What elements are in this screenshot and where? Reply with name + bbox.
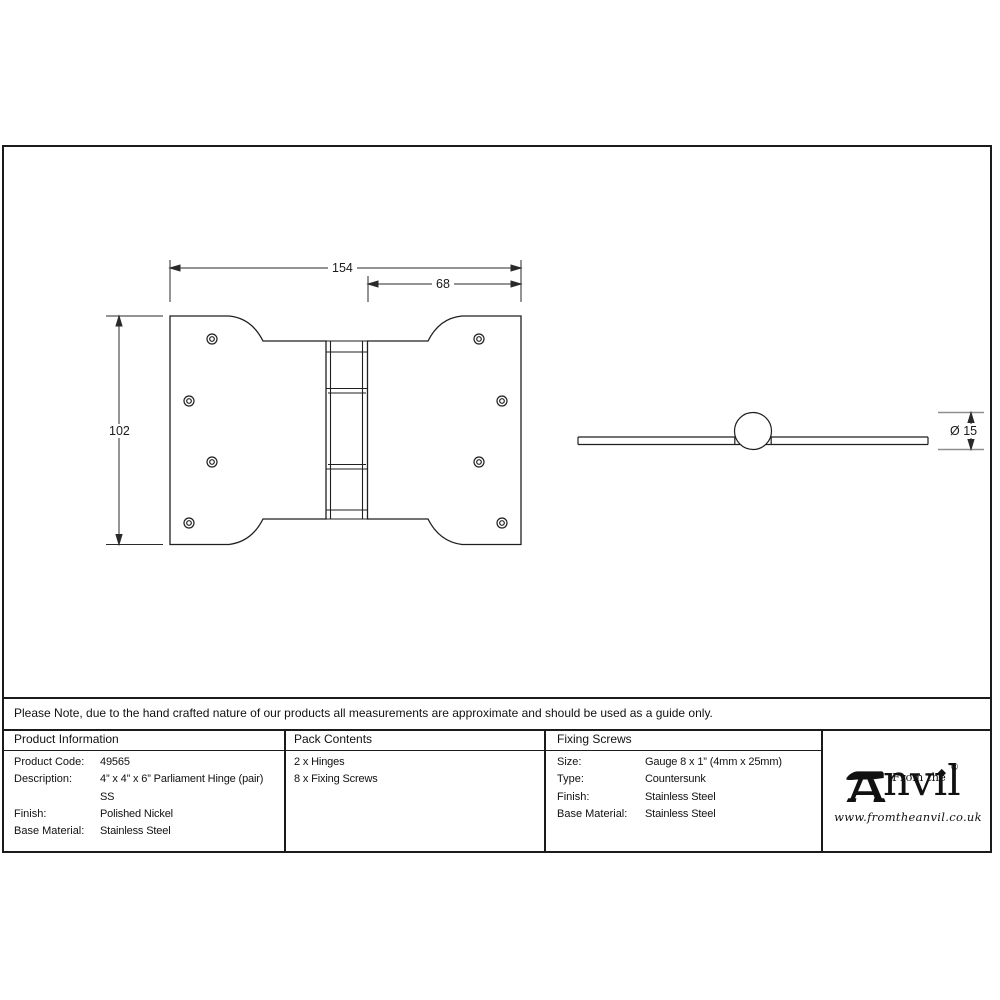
- rule-col-2-3: [544, 729, 546, 853]
- description-row: Description: 4” x 4” x 6” Parliament Hin…: [14, 771, 282, 788]
- screw-type-row: Type: Countersunk: [557, 771, 817, 788]
- measurement-note: Please Note, due to the hand crafted nat…: [14, 697, 974, 729]
- hinge-barrel: [326, 341, 368, 519]
- pack-item-hinges: 2 x Hinges: [294, 754, 534, 771]
- hinge-technical-drawing: [0, 0, 1000, 1000]
- screw-type-label: Type:: [557, 771, 645, 788]
- screw-size-label: Size:: [557, 754, 645, 771]
- header-fixing-screws: Fixing Screws: [557, 729, 632, 749]
- dim-overall-width-label: 154: [328, 261, 357, 275]
- screw-finish-value: Stainless Steel: [645, 789, 716, 806]
- description-continuation-row: SS: [14, 789, 282, 806]
- rule-header-bottom: [2, 750, 822, 752]
- dim-pin-diameter-label: Ø 15: [946, 424, 981, 438]
- pack-item-screws: 8 x Fixing Screws: [294, 771, 534, 788]
- hinge-left-leaf: [170, 316, 326, 545]
- dim-leaf-width-label: 68: [432, 277, 454, 291]
- screw-finish-label: Finish:: [557, 789, 645, 806]
- screw-base-material-value: Stainless Steel: [645, 806, 716, 823]
- product-information-cell: Product Code: 49565 Description: 4” x 4”…: [14, 754, 282, 840]
- description-value-line2: SS: [100, 789, 114, 806]
- screw-finish-row: Finish: Stainless Steel: [557, 789, 817, 806]
- logo-wordmark: nvıl: [883, 757, 961, 805]
- finish-row: Finish: Polished Nickel: [14, 806, 282, 823]
- spec-sheet-page: 154 68 102 Ø 15 Please Note, due to the …: [0, 0, 1000, 1000]
- hinge-right-leaf: [368, 316, 522, 545]
- header-pack-contents: Pack Contents: [294, 729, 372, 749]
- screw-holes-right: [474, 334, 507, 528]
- finish-label: Finish:: [14, 806, 100, 823]
- screw-type-value: Countersunk: [645, 771, 706, 788]
- fixing-screws-cell: Size: Gauge 8 x 1” (4mm x 25mm) Type: Co…: [557, 754, 817, 823]
- rule-col-1-2: [284, 729, 286, 853]
- logo-website: www.fromtheanvil.co.uk: [826, 810, 990, 824]
- base-material-row: Base Material: Stainless Steel: [14, 823, 282, 840]
- base-material-value: Stainless Steel: [100, 823, 171, 840]
- from-the-anvil-logo: From the nvıl ® www.fromtheanvil.co.uk: [828, 763, 988, 833]
- description-label: Description:: [14, 771, 100, 788]
- registered-trademark-symbol: ®: [950, 763, 959, 773]
- screw-size-row: Size: Gauge 8 x 1” (4mm x 25mm): [557, 754, 817, 771]
- finish-value: Polished Nickel: [100, 806, 173, 823]
- description-value: 4” x 4” x 6” Parliament Hinge (pair): [100, 771, 263, 788]
- screw-size-value: Gauge 8 x 1” (4mm x 25mm): [645, 754, 782, 771]
- header-product-information: Product Information: [14, 729, 119, 749]
- hinge-side-view: [578, 413, 928, 450]
- anvil-icon: [844, 768, 888, 802]
- hinge-front-view: [170, 316, 521, 545]
- rule-header-top: [2, 729, 992, 731]
- pack-contents-cell: 2 x Hinges 8 x Fixing Screws: [294, 754, 534, 789]
- product-code-row: Product Code: 49565: [14, 754, 282, 771]
- product-code-label: Product Code:: [14, 754, 100, 771]
- screw-base-material-row: Base Material: Stainless Steel: [557, 806, 817, 823]
- rule-col-3-4: [821, 729, 823, 853]
- product-code-value: 49565: [100, 754, 130, 771]
- dim-height-label: 102: [105, 424, 134, 438]
- base-material-label: Base Material:: [14, 823, 100, 840]
- screw-base-material-label: Base Material:: [557, 806, 645, 823]
- screw-holes-left: [184, 334, 217, 528]
